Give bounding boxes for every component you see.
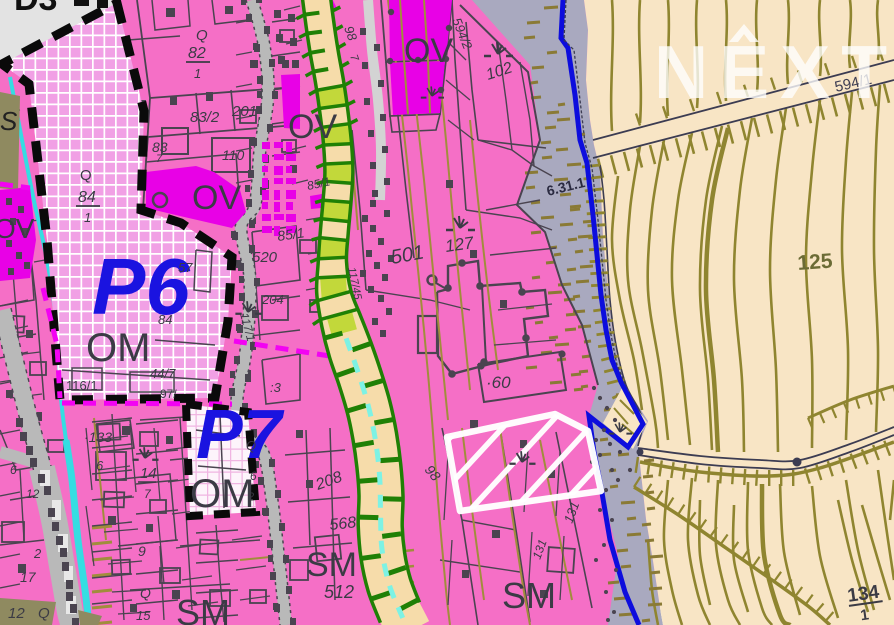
- svg-text:6: 6: [250, 469, 257, 483]
- svg-text:P6: P6: [92, 242, 190, 331]
- svg-text:6: 6: [96, 458, 104, 473]
- svg-text:NEXT: NEXT: [654, 30, 894, 114]
- svg-text:SM: SM: [176, 592, 230, 625]
- svg-text:Q: Q: [38, 605, 50, 622]
- svg-text:568: 568: [329, 514, 357, 534]
- svg-text:125: 125: [797, 250, 834, 275]
- svg-text:OM: OM: [190, 472, 254, 516]
- svg-text:127: 127: [444, 233, 475, 256]
- svg-text:SM: SM: [502, 575, 556, 616]
- svg-text:7: 7: [156, 153, 163, 165]
- svg-text:S: S: [0, 106, 18, 136]
- svg-text:17: 17: [20, 569, 37, 585]
- svg-text:97/: 97/: [160, 387, 177, 401]
- svg-text:2: 2: [247, 491, 254, 503]
- svg-text:14: 14: [140, 465, 157, 482]
- svg-text:512: 512: [324, 582, 354, 602]
- svg-text:1: 1: [84, 210, 91, 225]
- svg-text:9: 9: [138, 543, 146, 559]
- svg-text:201: 201: [231, 103, 257, 120]
- svg-text:116/1: 116/1: [66, 378, 98, 393]
- svg-text:204: 204: [261, 292, 284, 307]
- svg-text:6: 6: [10, 463, 17, 477]
- svg-text:15: 15: [136, 608, 151, 623]
- svg-text:12: 12: [8, 605, 25, 622]
- svg-text::3: :3: [270, 380, 282, 395]
- svg-text:·60: ·60: [486, 373, 511, 392]
- svg-text:83/2: 83/2: [190, 109, 220, 126]
- svg-text:12: 12: [26, 487, 40, 501]
- svg-text:82: 82: [188, 45, 206, 62]
- svg-text:D3: D3: [14, 0, 57, 18]
- svg-text:Q: Q: [140, 585, 151, 601]
- svg-text:P7: P7: [196, 395, 285, 473]
- svg-text:SM: SM: [306, 546, 357, 584]
- svg-text:84: 84: [158, 312, 172, 327]
- svg-text:OV: OV: [192, 179, 241, 217]
- svg-text:44/7: 44/7: [150, 366, 176, 381]
- svg-text:57: 57: [178, 260, 193, 275]
- svg-text:·133: ·133: [84, 429, 112, 445]
- svg-text:1: 1: [194, 66, 201, 81]
- svg-text:OM: OM: [86, 326, 150, 370]
- svg-text:Q: Q: [246, 438, 256, 453]
- svg-text:Q: Q: [80, 167, 92, 184]
- svg-text:OV: OV: [0, 213, 35, 244]
- svg-text:OV: OV: [404, 32, 453, 70]
- svg-text:520: 520: [252, 249, 278, 266]
- svg-text:2: 2: [33, 546, 42, 561]
- svg-text:OV: OV: [288, 108, 337, 146]
- svg-text:84: 84: [78, 189, 96, 206]
- svg-text:Q: Q: [196, 27, 208, 44]
- svg-text:110: 110: [222, 147, 245, 163]
